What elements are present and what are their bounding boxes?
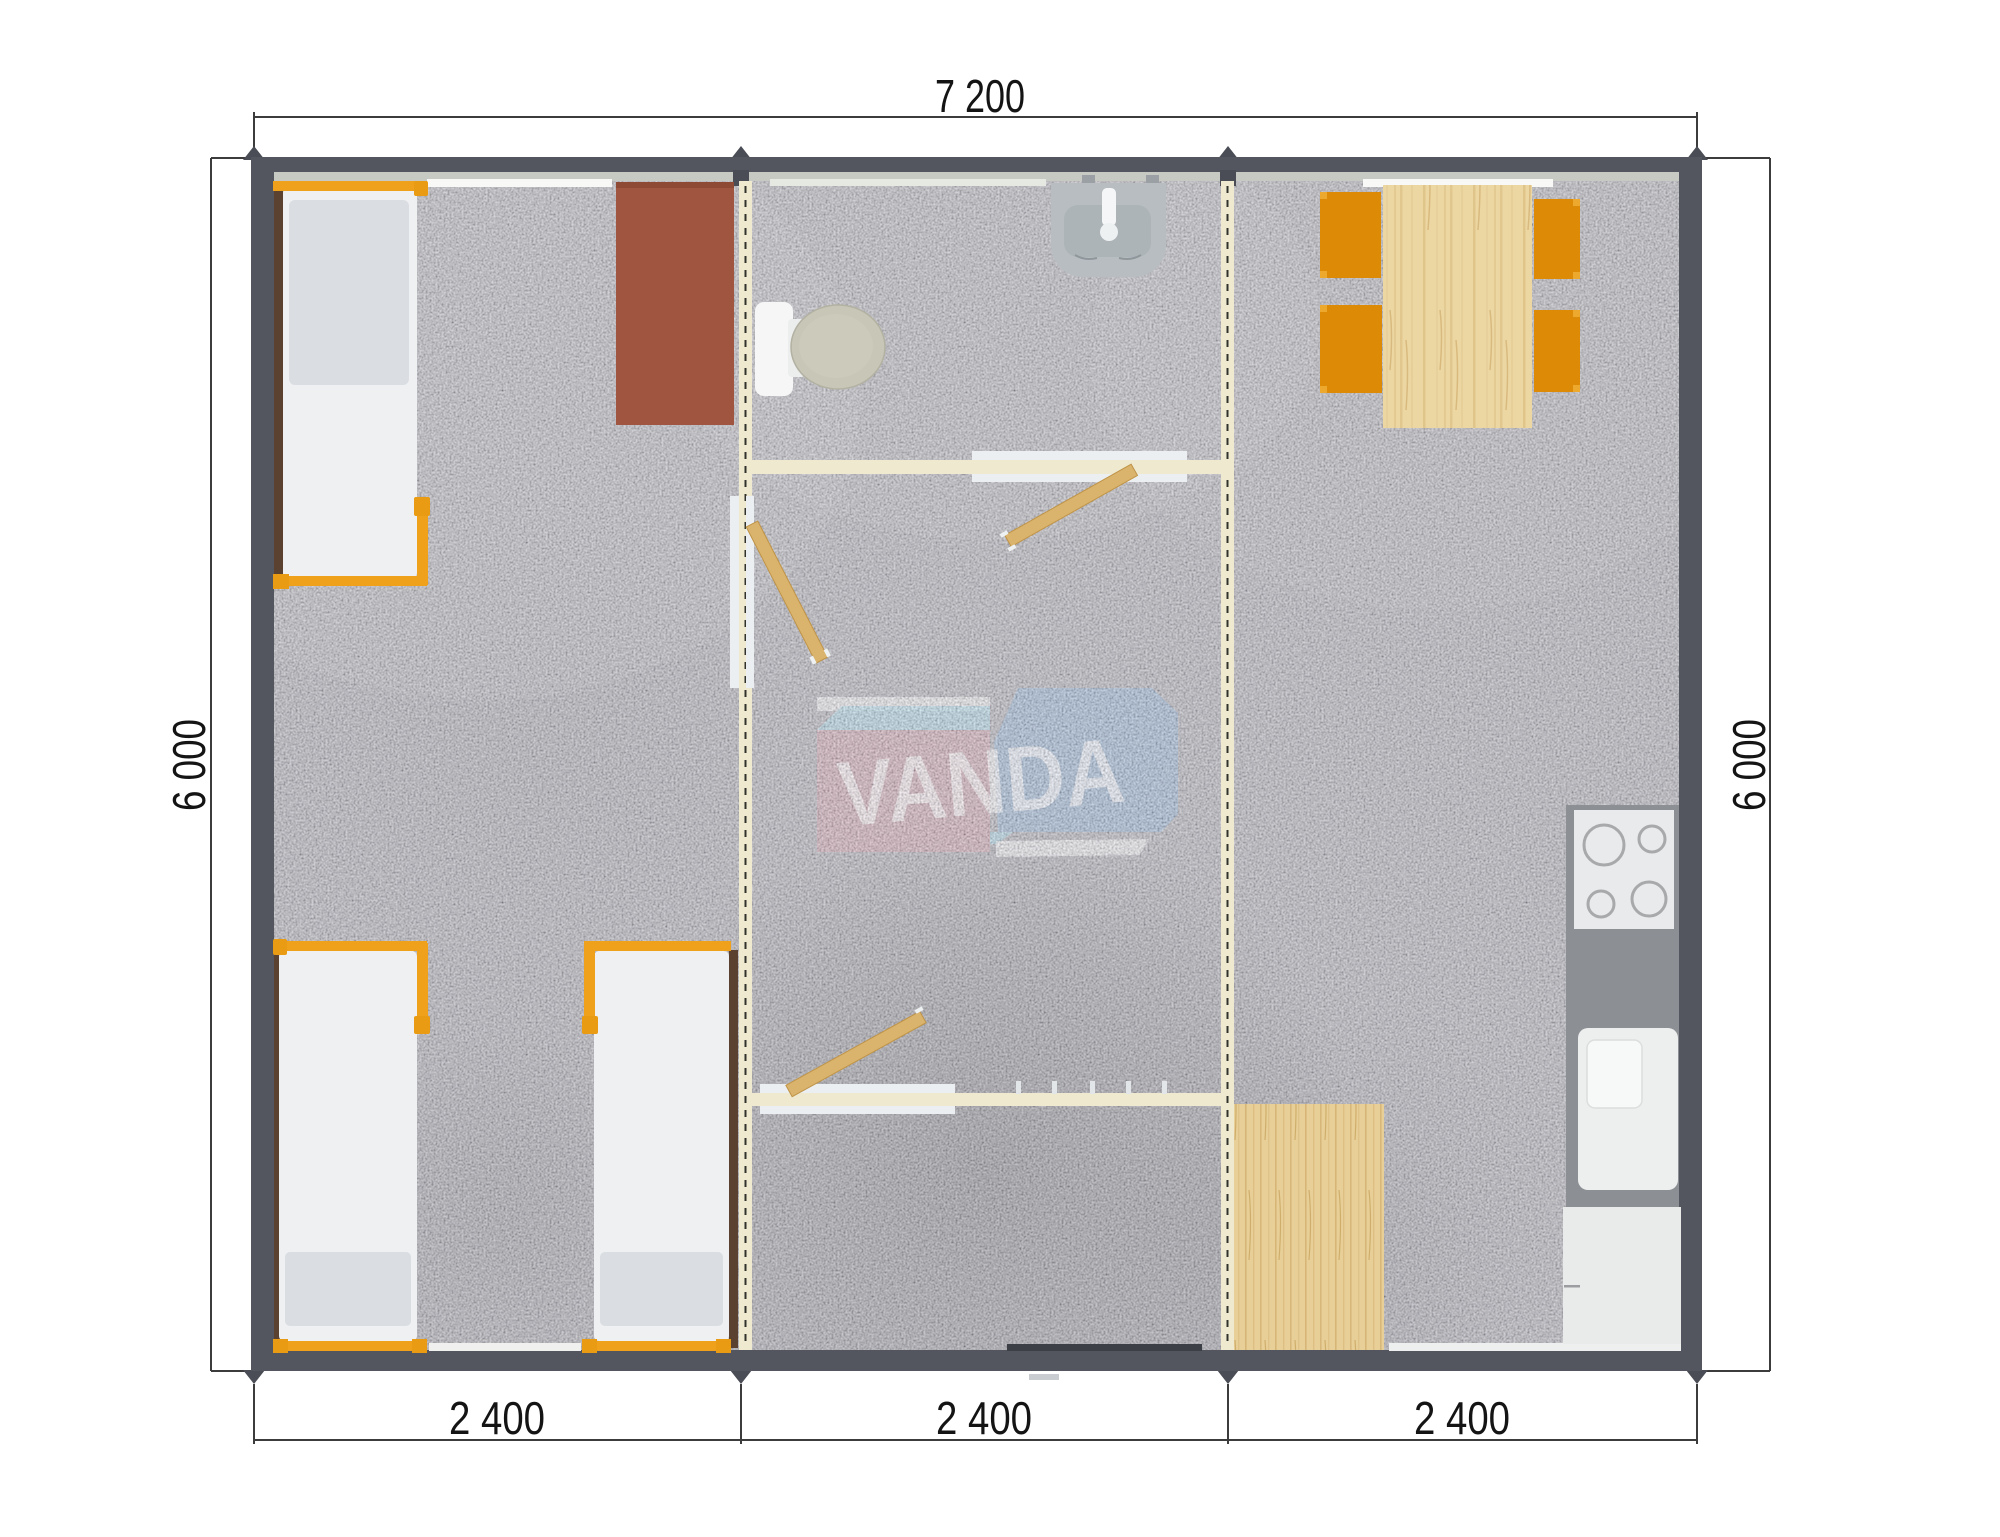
svg-text:2 400: 2 400: [449, 1392, 545, 1444]
svg-text:6 000: 6 000: [163, 719, 215, 811]
svg-text:2 400: 2 400: [936, 1392, 1032, 1444]
svg-text:6 000: 6 000: [1723, 719, 1775, 811]
svg-text:2 400: 2 400: [1414, 1392, 1510, 1444]
svg-text:7 200: 7 200: [935, 70, 1025, 122]
